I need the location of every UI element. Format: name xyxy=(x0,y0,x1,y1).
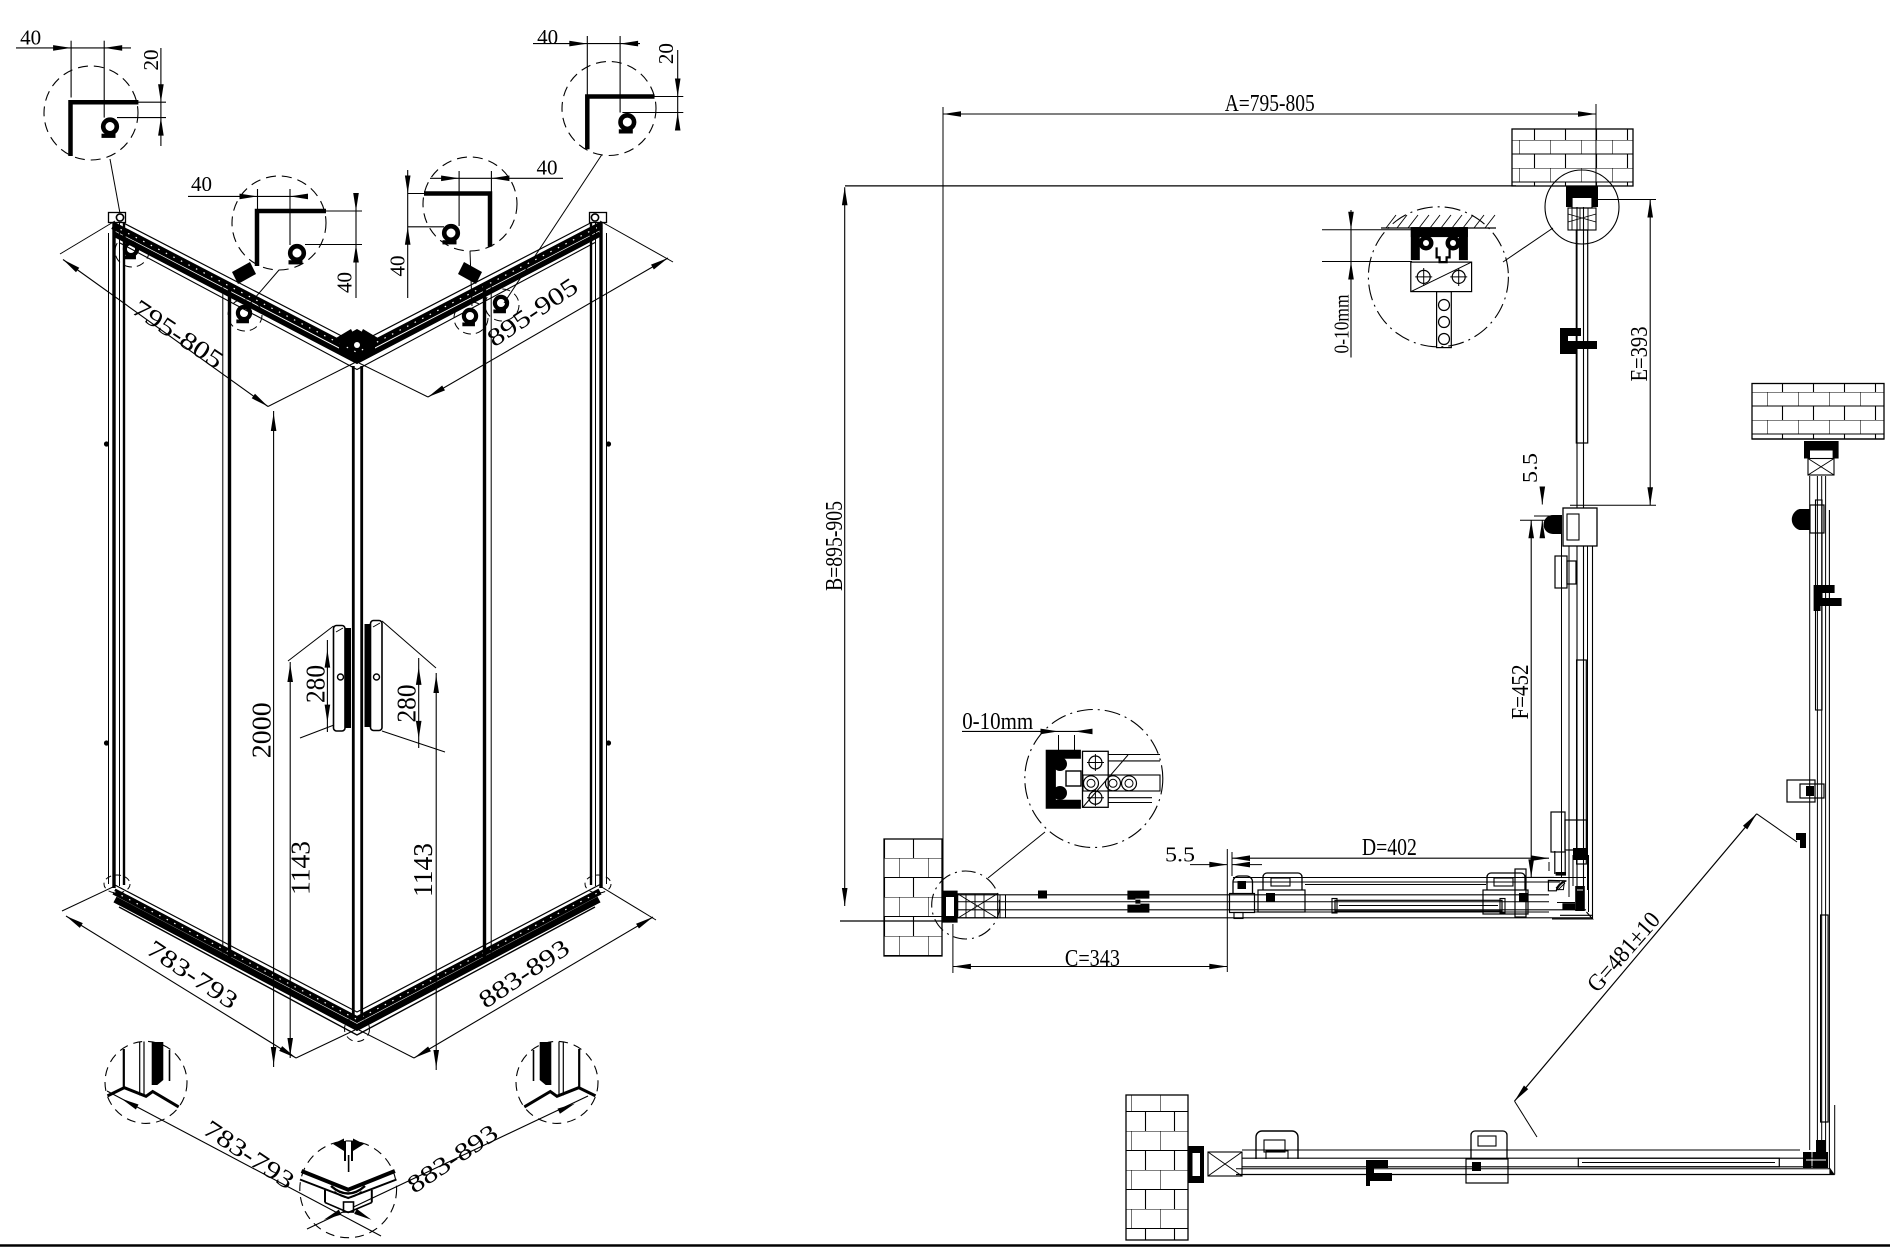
svg-text:40: 40 xyxy=(386,256,410,277)
svg-text:C=343: C=343 xyxy=(1065,946,1120,972)
svg-text:40: 40 xyxy=(537,156,558,180)
svg-text:A=795-805: A=795-805 xyxy=(1225,91,1315,117)
svg-text:5.5: 5.5 xyxy=(1518,453,1542,483)
svg-text:280: 280 xyxy=(301,665,331,703)
svg-text:1143: 1143 xyxy=(285,841,315,895)
svg-text:20: 20 xyxy=(654,43,678,64)
svg-text:40: 40 xyxy=(191,172,212,196)
svg-text:0-10mm: 0-10mm xyxy=(1330,295,1354,354)
svg-text:40: 40 xyxy=(20,25,41,49)
svg-text:280: 280 xyxy=(392,685,422,723)
svg-text:40: 40 xyxy=(537,25,558,49)
svg-text:B=895-905: B=895-905 xyxy=(822,501,848,591)
svg-text:40: 40 xyxy=(333,272,357,293)
svg-text:D=402: D=402 xyxy=(1362,835,1417,861)
svg-text:1143: 1143 xyxy=(408,843,438,897)
svg-text:E=393: E=393 xyxy=(1627,327,1653,382)
svg-text:F=452: F=452 xyxy=(1508,665,1534,720)
svg-text:20: 20 xyxy=(139,50,163,71)
svg-text:5.5: 5.5 xyxy=(1165,843,1195,867)
svg-text:2000: 2000 xyxy=(247,702,277,758)
